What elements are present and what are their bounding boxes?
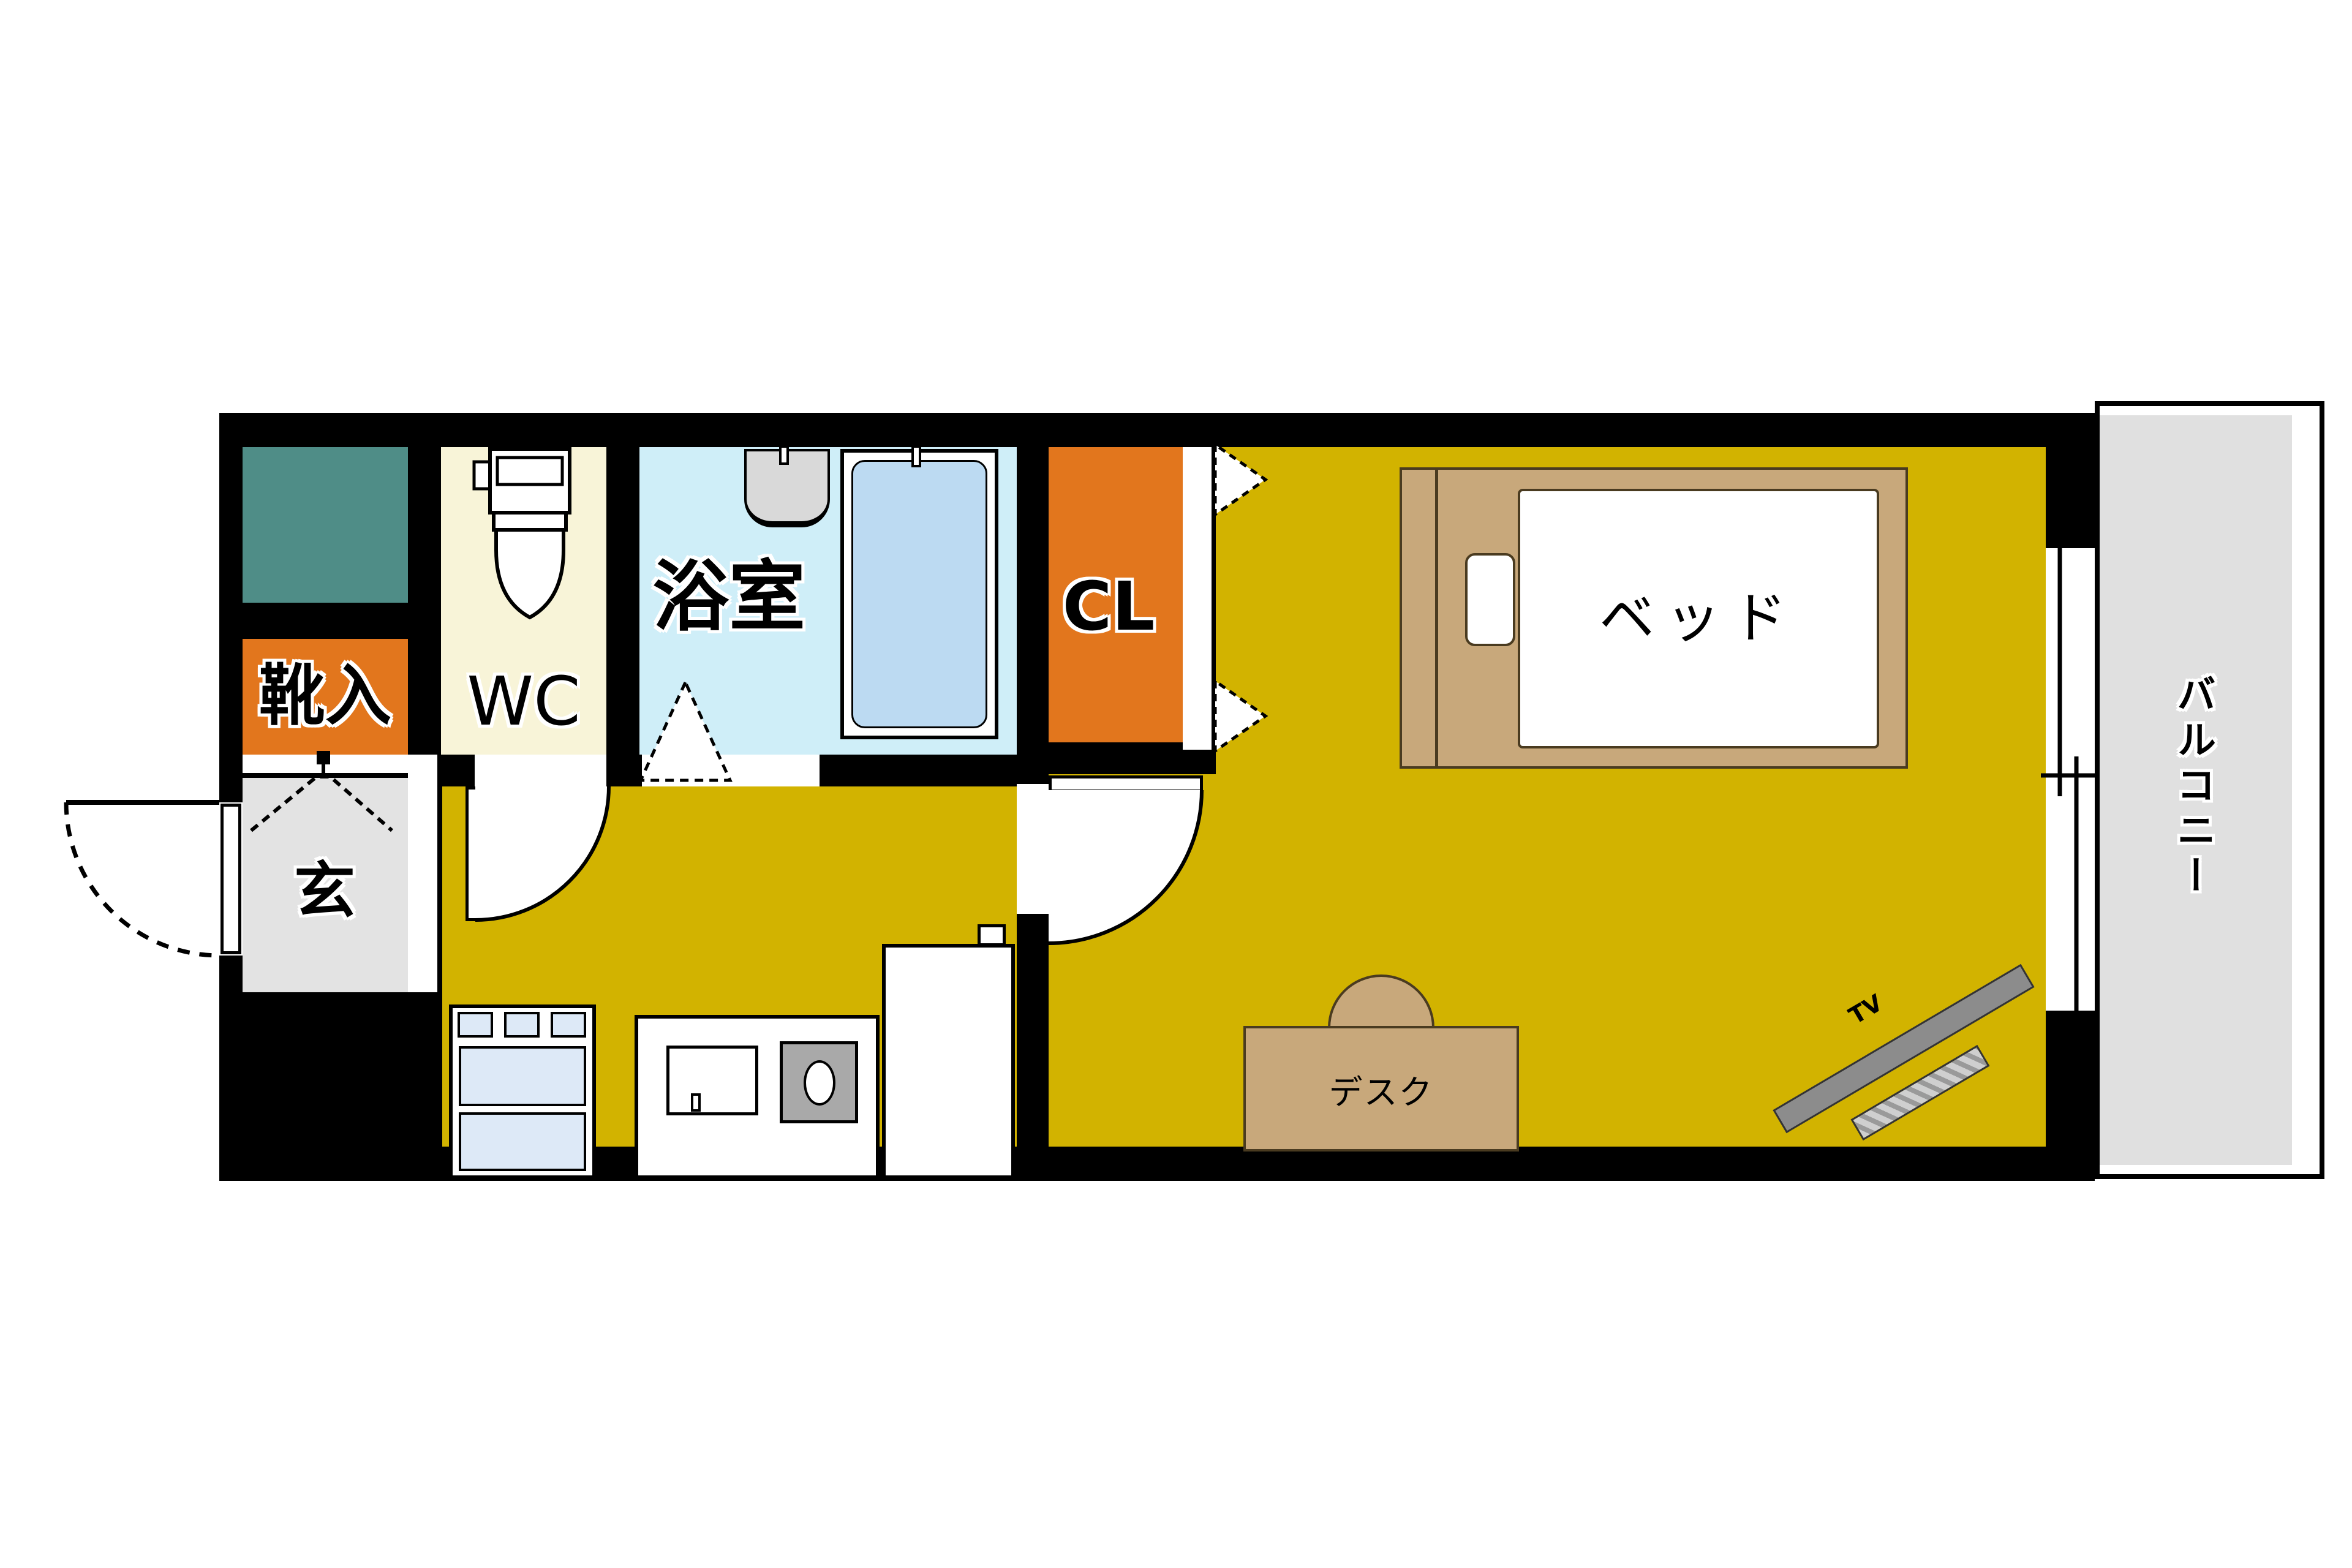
- kitchen-counter-unit: [635, 1015, 880, 1179]
- closet-door-arrow-icon-top: [1215, 445, 1265, 514]
- bathroom-sink-tap: [779, 445, 789, 465]
- sliding-window-icon: [2041, 548, 2097, 1011]
- bed-headboard-line: [1435, 467, 1438, 769]
- cabinet-drawer-1: [458, 1012, 493, 1038]
- balcony-label: バルコニー: [2173, 674, 2212, 900]
- appliance-space-unit: [882, 944, 1015, 1179]
- kitchen-cabinet-unit: [449, 1005, 596, 1179]
- kitchen-sink-drain: [691, 1093, 701, 1112]
- bathroom-folding-door-icon: [641, 682, 730, 780]
- cabinet-drawer-3: [551, 1012, 586, 1038]
- front-door-swing-arc: [66, 802, 219, 956]
- bed-pillow: [1465, 553, 1515, 646]
- appliance-space-tab: [978, 924, 1006, 946]
- entrance-label: 玄: [294, 861, 355, 922]
- cabinet-drawer-2: [504, 1012, 540, 1038]
- shoe-cabinet-label: 靴入: [259, 663, 391, 729]
- entrance-step-icon: [251, 751, 392, 831]
- toilet-door-swing-fill: [475, 786, 609, 920]
- kitchen-sink-icon: [666, 1046, 758, 1115]
- stove-icon: [780, 1041, 858, 1123]
- main-door-swing-fill: [1049, 790, 1202, 943]
- stove-burner: [804, 1060, 835, 1106]
- toilet-icon: [474, 449, 570, 617]
- cabinet-door-lower: [459, 1112, 586, 1171]
- closet-label: CL: [1063, 573, 1155, 640]
- bathtub-tap: [911, 445, 921, 467]
- symbol-overlay: [0, 0, 2352, 1568]
- bathroom-label: 浴室: [652, 559, 805, 636]
- floor-plan: 靴入 WC 浴室 CL 玄 ベッド デスク TV バルコニー: [0, 0, 2352, 1568]
- bed-label: ベッド: [1599, 591, 1798, 646]
- cabinet-door-upper: [459, 1046, 586, 1106]
- desk-label: デスク: [1329, 1076, 1433, 1110]
- closet-door-arrow-icon-bottom: [1215, 681, 1265, 751]
- bathtub-water: [851, 460, 987, 728]
- toilet-label: WC: [467, 668, 581, 735]
